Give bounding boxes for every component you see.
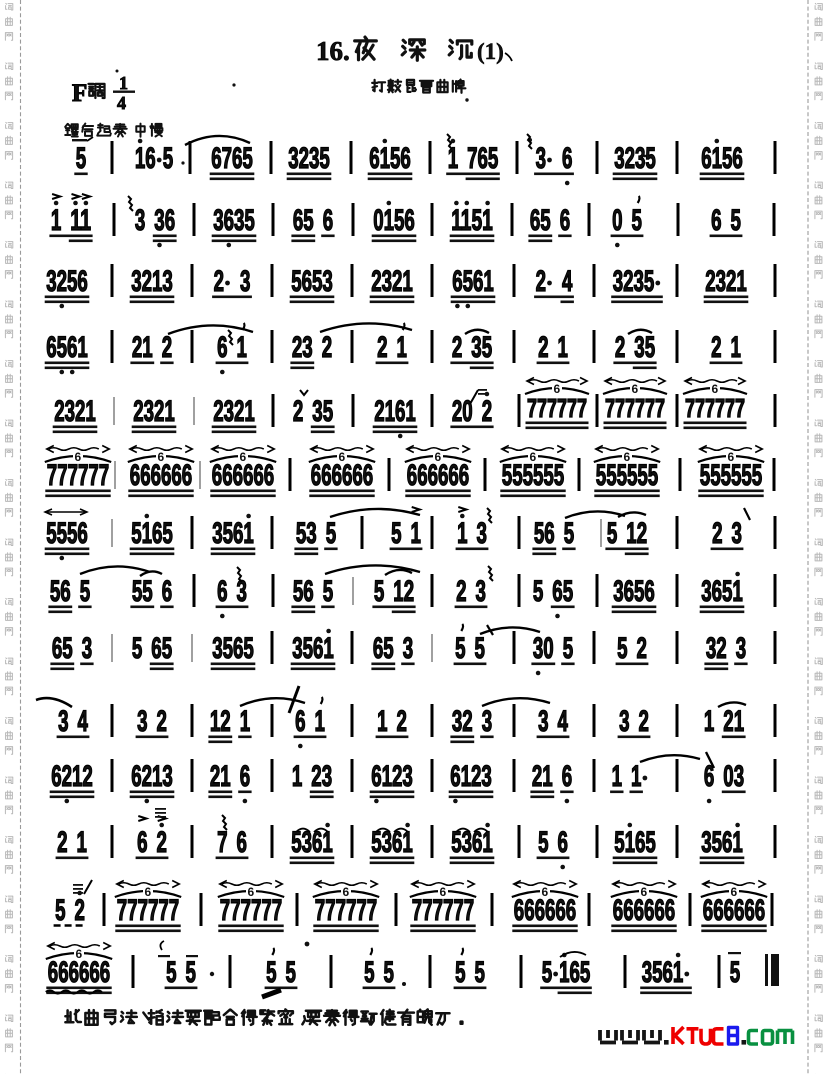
svg-text:5: 5: [76, 142, 86, 175]
svg-text:5: 5: [326, 517, 336, 550]
svg-text:3: 3: [619, 705, 629, 738]
svg-text:56: 56: [50, 575, 71, 608]
svg-text:6: 6: [558, 826, 568, 859]
svg-text:2: 2: [456, 575, 466, 608]
svg-text:6: 6: [75, 450, 82, 464]
svg-text:65: 65: [293, 204, 314, 237]
svg-text:3651: 3651: [701, 575, 743, 608]
svg-text:1: 1: [631, 760, 641, 793]
svg-text:2: 2: [536, 265, 546, 298]
svg-text:32: 32: [452, 705, 473, 738]
svg-text:2: 2: [293, 395, 303, 428]
svg-text:65: 65: [552, 575, 573, 608]
svg-text:2: 2: [711, 331, 721, 364]
svg-text:6: 6: [562, 760, 572, 793]
svg-text:2: 2: [615, 331, 625, 364]
svg-text:1: 1: [119, 73, 128, 93]
svg-text:65: 65: [151, 632, 172, 665]
svg-text:6561: 6561: [46, 331, 88, 364]
svg-text:3235: 3235: [613, 265, 655, 298]
svg-text:6: 6: [217, 575, 227, 608]
svg-text:2: 2: [157, 826, 167, 859]
svg-text:6: 6: [137, 826, 147, 859]
svg-text:5: 5: [391, 517, 401, 550]
svg-text:3635: 3635: [213, 204, 255, 237]
svg-text:35: 35: [312, 395, 333, 428]
svg-text:53: 53: [296, 517, 317, 550]
svg-text:6: 6: [632, 382, 639, 396]
svg-text:12: 12: [393, 575, 414, 608]
svg-text:6: 6: [731, 885, 738, 899]
svg-text:F: F: [72, 80, 87, 107]
svg-text:6123: 6123: [450, 760, 492, 793]
svg-text:6: 6: [158, 450, 165, 464]
svg-text:3: 3: [58, 705, 68, 738]
svg-text:765: 765: [467, 142, 498, 175]
svg-text:6: 6: [343, 885, 350, 899]
svg-text:777777: 777777: [605, 393, 665, 423]
svg-text:1: 1: [237, 331, 247, 364]
svg-text:6: 6: [542, 885, 549, 899]
svg-text:21: 21: [132, 331, 153, 364]
svg-text:6: 6: [712, 382, 719, 396]
svg-text:5653: 5653: [291, 265, 333, 298]
svg-text:6: 6: [711, 204, 721, 237]
svg-text:12: 12: [210, 705, 231, 738]
svg-text:1151: 1151: [451, 204, 493, 237]
svg-text:1: 1: [731, 331, 741, 364]
svg-text:6: 6: [76, 947, 83, 961]
svg-text:1: 1: [411, 517, 421, 550]
svg-text:2321: 2321: [213, 395, 255, 428]
svg-text:35: 35: [634, 331, 655, 364]
svg-text:165: 165: [559, 956, 590, 989]
svg-text:1: 1: [292, 760, 302, 793]
svg-text:5: 5: [166, 956, 176, 989]
svg-text:36: 36: [154, 204, 175, 237]
svg-text:5165: 5165: [614, 826, 656, 859]
svg-text:2321: 2321: [705, 265, 747, 298]
svg-text:1: 1: [315, 705, 325, 738]
svg-text:2: 2: [322, 331, 332, 364]
svg-text:6: 6: [530, 450, 537, 464]
svg-text:6: 6: [217, 331, 227, 364]
svg-text:5: 5: [384, 956, 394, 989]
svg-text:6: 6: [248, 885, 255, 899]
svg-text:3: 3: [732, 517, 742, 550]
svg-text:5: 5: [542, 956, 552, 989]
svg-text:6: 6: [240, 450, 247, 464]
svg-text:6: 6: [560, 204, 570, 237]
svg-text:3235: 3235: [288, 142, 330, 175]
svg-text:6: 6: [728, 450, 735, 464]
svg-text:5: 5: [266, 956, 276, 989]
svg-text:2: 2: [157, 705, 167, 738]
svg-text:777777: 777777: [685, 393, 745, 423]
svg-text:6: 6: [624, 450, 631, 464]
svg-text:2: 2: [75, 894, 85, 927]
svg-text:6765: 6765: [211, 142, 253, 175]
svg-text:1: 1: [77, 826, 87, 859]
svg-text:1: 1: [704, 705, 714, 738]
svg-text:6: 6: [240, 760, 250, 793]
svg-text:1: 1: [558, 331, 568, 364]
svg-text:5: 5: [455, 956, 465, 989]
svg-text:12: 12: [626, 517, 647, 550]
svg-text:21: 21: [723, 705, 744, 738]
svg-text:03: 03: [723, 760, 744, 793]
svg-text:3: 3: [482, 705, 492, 738]
svg-text:5: 5: [132, 632, 142, 665]
svg-text:2321: 2321: [54, 395, 96, 428]
svg-text:1: 1: [377, 705, 387, 738]
svg-text:3: 3: [538, 705, 548, 738]
svg-text:6123: 6123: [371, 760, 413, 793]
svg-text:3: 3: [403, 632, 413, 665]
svg-text:65: 65: [530, 204, 551, 237]
svg-text:3561: 3561: [292, 632, 334, 665]
svg-text:16: 16: [135, 142, 156, 175]
svg-text:6: 6: [562, 142, 572, 175]
svg-text:2: 2: [482, 395, 492, 428]
svg-text:(1): (1): [477, 39, 504, 64]
svg-text:30: 30: [533, 632, 554, 665]
svg-text:5: 5: [374, 575, 384, 608]
svg-text:5: 5: [632, 204, 642, 237]
svg-text:3561: 3561: [212, 517, 254, 550]
svg-text:20: 20: [452, 395, 473, 428]
svg-text:6: 6: [295, 705, 305, 738]
svg-text:5: 5: [533, 575, 543, 608]
svg-text:2: 2: [452, 331, 462, 364]
svg-text:3561: 3561: [642, 956, 684, 989]
svg-text:2: 2: [712, 517, 722, 550]
svg-text:6: 6: [339, 450, 346, 464]
svg-text:3: 3: [237, 575, 247, 608]
svg-text:21: 21: [532, 760, 553, 793]
svg-text:1: 1: [240, 705, 250, 738]
svg-text:11: 11: [70, 204, 91, 237]
svg-text:5: 5: [323, 575, 333, 608]
svg-text:65: 65: [373, 632, 394, 665]
svg-text:35: 35: [471, 331, 492, 364]
svg-text:5: 5: [286, 956, 296, 989]
svg-text:16.: 16.: [316, 36, 350, 66]
svg-text:5: 5: [564, 517, 574, 550]
svg-text:1: 1: [612, 760, 622, 793]
svg-text:65: 65: [52, 632, 73, 665]
svg-text:3: 3: [82, 632, 92, 665]
svg-text:3: 3: [135, 204, 145, 237]
svg-text:5: 5: [617, 632, 627, 665]
svg-text:6: 6: [440, 885, 447, 899]
svg-text:6156: 6156: [369, 142, 411, 175]
svg-text:3256: 3256: [46, 265, 88, 298]
svg-text:0: 0: [612, 204, 622, 237]
svg-text:2: 2: [538, 331, 548, 364]
svg-text:2321: 2321: [371, 265, 413, 298]
svg-text:3: 3: [137, 705, 147, 738]
svg-text:23: 23: [311, 760, 332, 793]
svg-text:6561: 6561: [452, 265, 494, 298]
svg-text:3656: 3656: [613, 575, 655, 608]
svg-text:1: 1: [457, 517, 467, 550]
svg-text:6: 6: [162, 575, 172, 608]
svg-text:21: 21: [210, 760, 231, 793]
svg-text:6213: 6213: [131, 760, 173, 793]
svg-text:777777: 777777: [527, 393, 587, 423]
svg-text:6: 6: [237, 826, 247, 859]
svg-text:4: 4: [117, 93, 126, 113]
svg-text:5: 5: [55, 894, 65, 927]
svg-text:5: 5: [538, 826, 548, 859]
svg-text:7: 7: [217, 826, 227, 859]
svg-text:3565: 3565: [212, 632, 254, 665]
svg-text:3: 3: [477, 517, 487, 550]
svg-text:23: 23: [292, 331, 313, 364]
svg-text:3: 3: [240, 265, 250, 298]
svg-text:4: 4: [78, 705, 89, 738]
svg-text:6: 6: [323, 204, 333, 237]
svg-text:56: 56: [534, 517, 555, 550]
svg-text:5: 5: [455, 632, 465, 665]
svg-text:2161: 2161: [374, 395, 416, 428]
svg-text:6: 6: [641, 885, 648, 899]
svg-text:5: 5: [475, 632, 485, 665]
svg-text:3: 3: [476, 575, 486, 608]
svg-text:2: 2: [162, 331, 172, 364]
svg-text:5: 5: [80, 575, 90, 608]
svg-text:2: 2: [637, 632, 647, 665]
svg-text:1: 1: [397, 331, 407, 364]
svg-text:6: 6: [145, 885, 152, 899]
svg-text:5: 5: [607, 517, 617, 550]
svg-text:32: 32: [706, 632, 727, 665]
svg-text:5165: 5165: [131, 517, 173, 550]
svg-text:5: 5: [563, 632, 573, 665]
svg-text:5: 5: [364, 956, 374, 989]
svg-text:4: 4: [558, 705, 569, 738]
svg-text:6156: 6156: [701, 142, 743, 175]
svg-text:5: 5: [163, 142, 173, 175]
svg-text:2: 2: [397, 705, 407, 738]
svg-text:5: 5: [730, 956, 740, 989]
svg-text:3213: 3213: [131, 265, 173, 298]
svg-text:2: 2: [214, 265, 224, 298]
svg-text:6212: 6212: [51, 760, 93, 793]
svg-text:55: 55: [132, 575, 153, 608]
svg-text:6: 6: [435, 450, 442, 464]
svg-text:5: 5: [475, 956, 485, 989]
svg-text:5: 5: [731, 204, 741, 237]
svg-text:4: 4: [562, 265, 573, 298]
svg-text:2321: 2321: [133, 395, 175, 428]
svg-text:2: 2: [377, 331, 387, 364]
svg-text:6: 6: [554, 382, 561, 396]
svg-text:2: 2: [57, 826, 67, 859]
svg-text:56: 56: [293, 575, 314, 608]
svg-text:3561: 3561: [701, 826, 743, 859]
svg-text:3: 3: [736, 632, 746, 665]
svg-text:5: 5: [186, 956, 196, 989]
svg-text:3235: 3235: [614, 142, 656, 175]
svg-text:3: 3: [536, 142, 546, 175]
svg-text:0156: 0156: [373, 204, 415, 237]
svg-text:5556: 5556: [46, 517, 88, 550]
svg-text:1: 1: [51, 204, 61, 237]
svg-text:2: 2: [639, 705, 649, 738]
